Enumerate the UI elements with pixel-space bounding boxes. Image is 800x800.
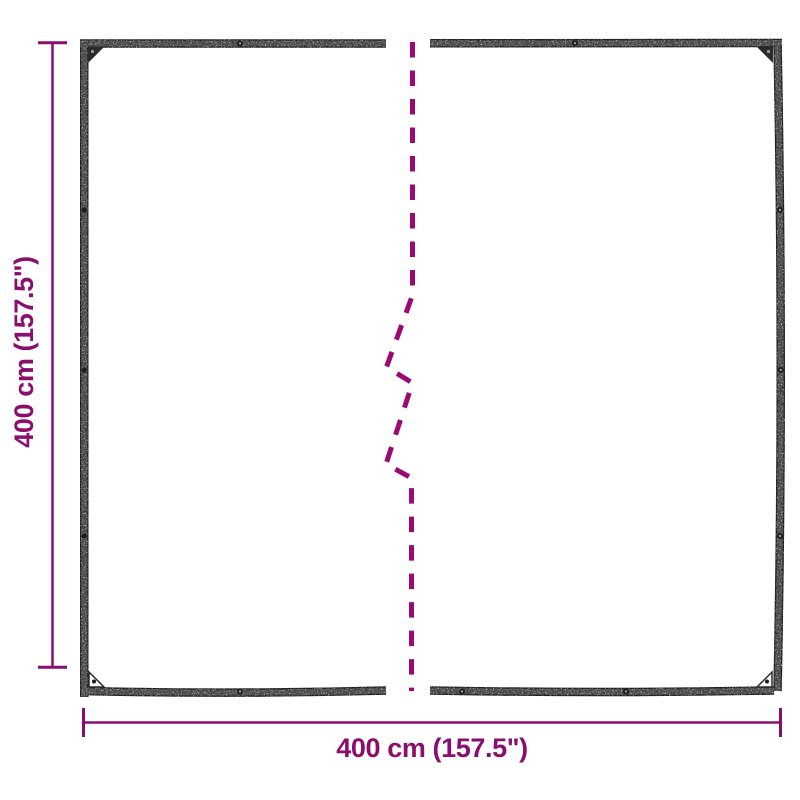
corner-patch [757, 672, 772, 687]
grommet [777, 533, 783, 539]
tarpaulin-dimension-drawing [0, 0, 800, 800]
grommet [82, 533, 87, 538]
height-dimension-label: 400 cm (157.5") [9, 102, 43, 602]
corner-patch [757, 47, 773, 63]
width-dimension-label: 400 cm (157.5") [182, 733, 682, 764]
grommet [82, 367, 87, 372]
grommet [623, 689, 629, 695]
corner-patch [89, 672, 104, 687]
grommet [91, 50, 94, 53]
grommet [765, 680, 769, 684]
grommet [237, 41, 243, 47]
edge-grommets [82, 40, 784, 694]
grommet [237, 689, 243, 695]
tarp-outline [80, 40, 782, 697]
product-dimension-diagram: 400 cm (157.5") 400 cm (157.5") [0, 0, 800, 800]
grommet [459, 689, 465, 695]
grommet [767, 50, 770, 53]
grommet [777, 207, 783, 213]
grommet [82, 207, 87, 212]
grommet [92, 680, 96, 684]
grommet [778, 367, 784, 373]
corner-reinforcements [88, 47, 773, 687]
corner-patch [88, 47, 104, 63]
fold-break-line [386, 42, 413, 691]
grommet [572, 40, 578, 46]
